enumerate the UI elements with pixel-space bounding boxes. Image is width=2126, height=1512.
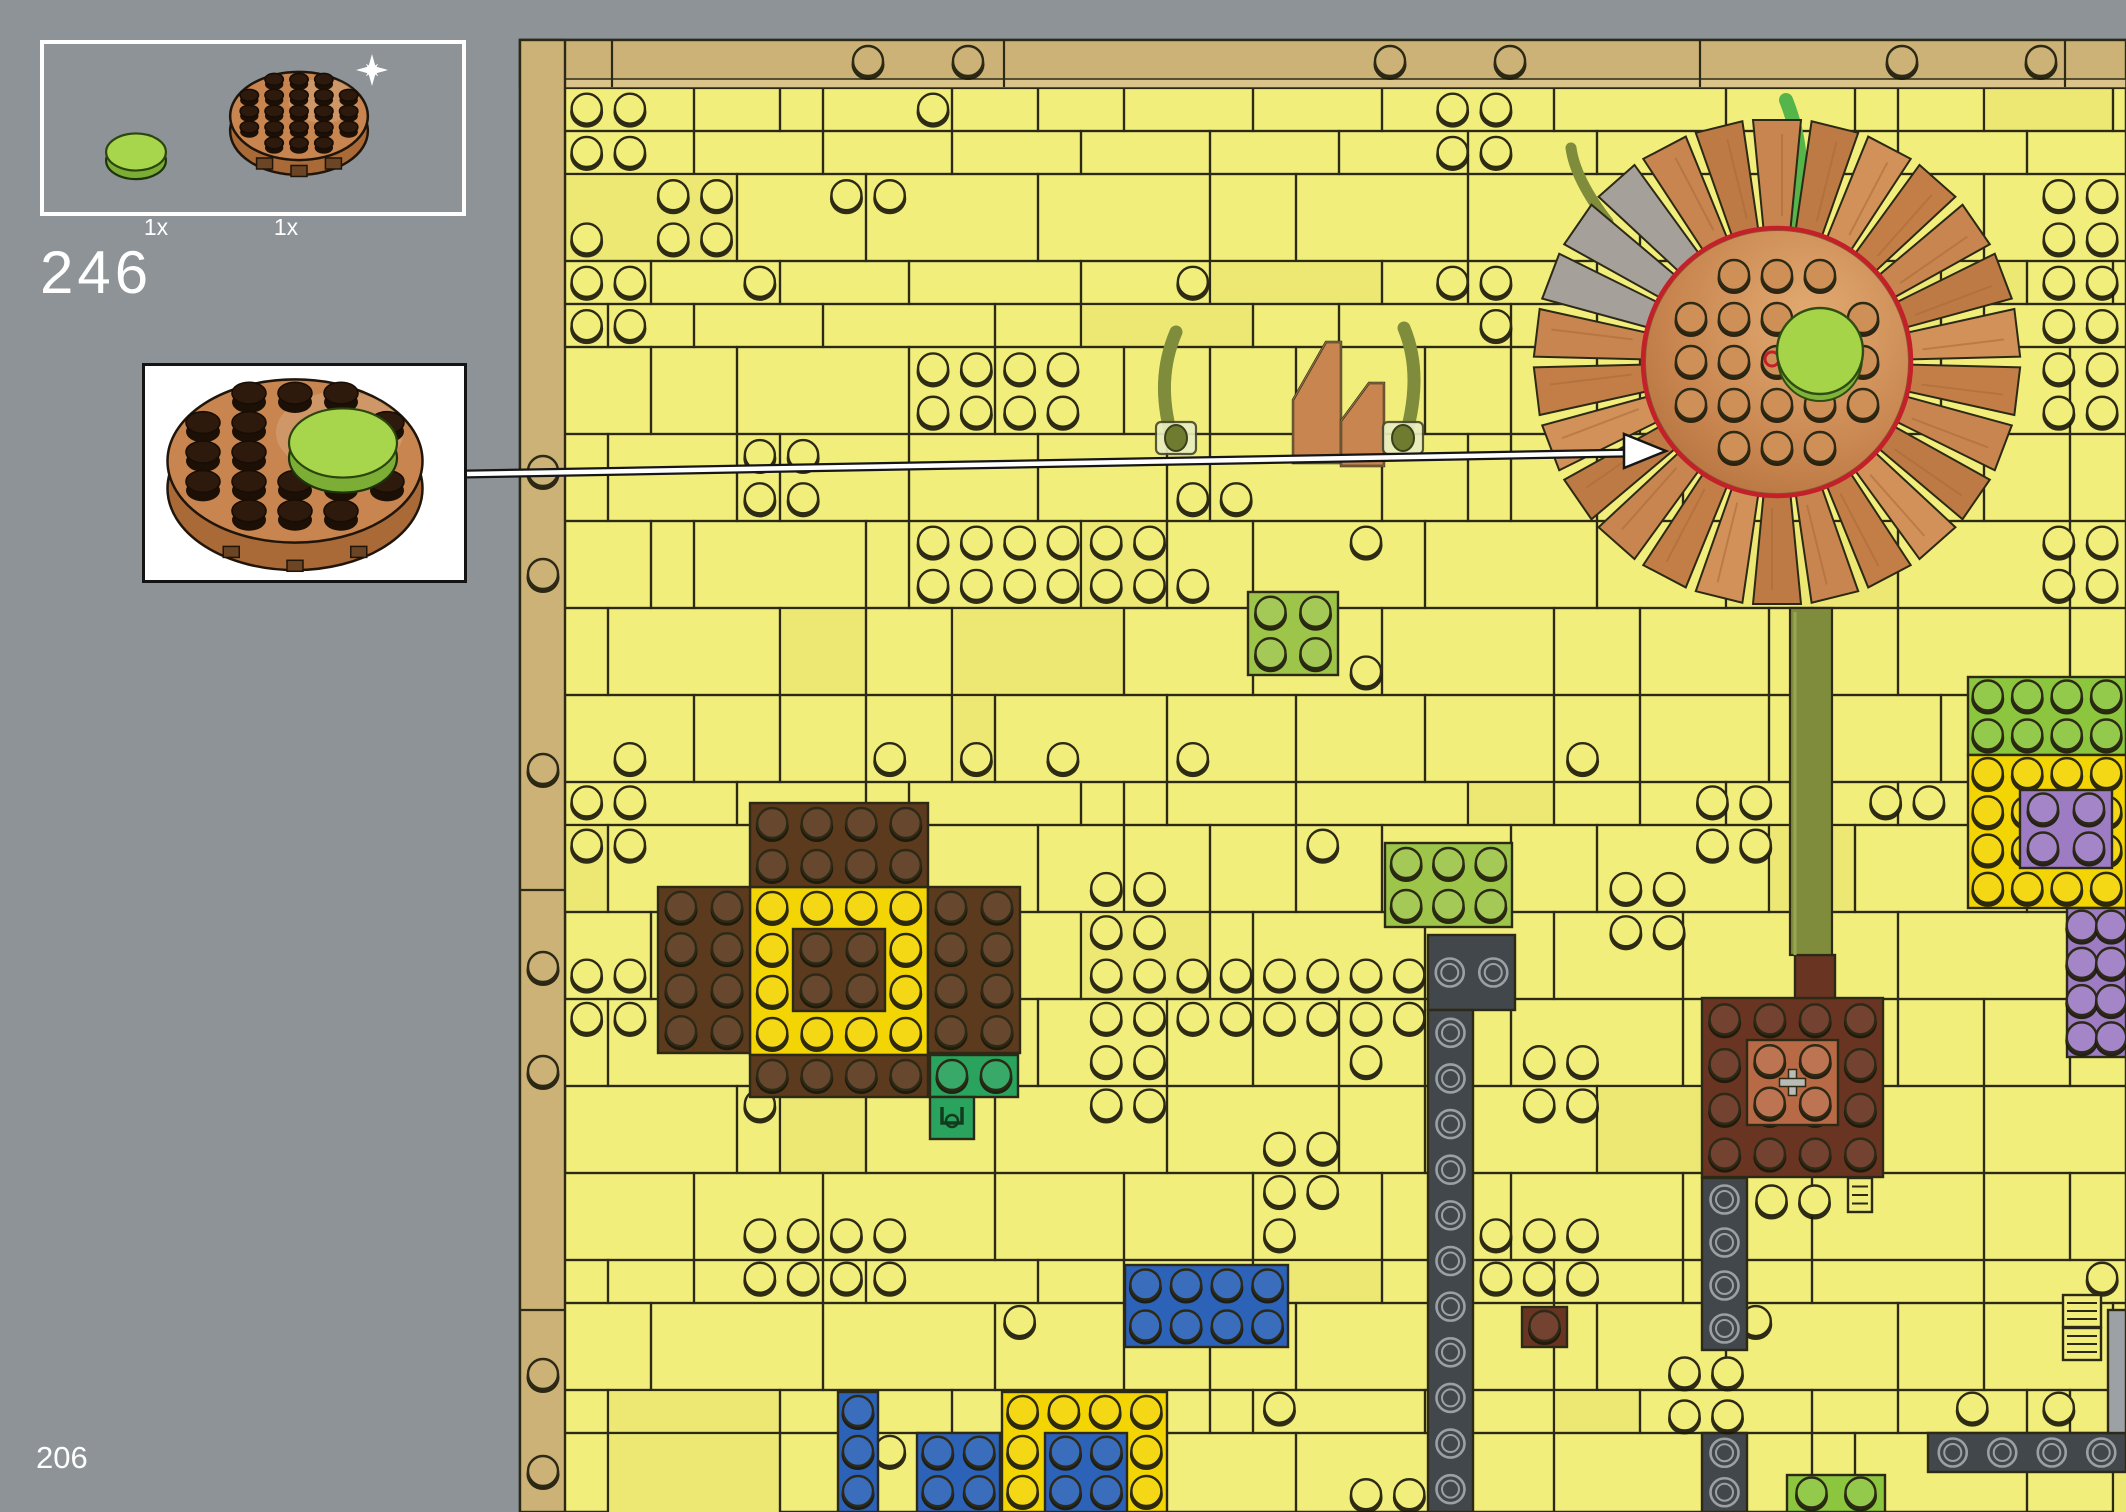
part-count-round-plate: 1x: [262, 214, 310, 241]
parts-callout: 1x 1x: [40, 40, 466, 216]
subassembly-art: [145, 366, 464, 580]
subassembly-callout: [142, 363, 467, 583]
page-number: 206: [36, 1440, 88, 1476]
parts-callout-art: [44, 44, 462, 212]
instruction-page: 1x 1x 246 206: [0, 0, 2126, 1512]
part-count-green-tile: 1x: [132, 214, 180, 241]
step-number: 246: [40, 238, 152, 307]
build-illustration: [0, 0, 2126, 1512]
